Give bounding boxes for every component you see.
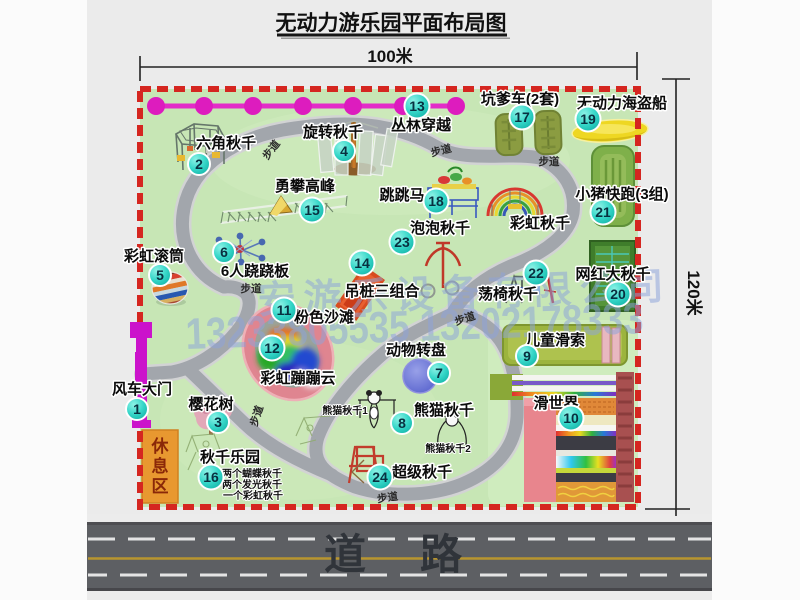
svg-text:6: 6	[220, 244, 228, 260]
svg-text:两个发光秋千: 两个发光秋千	[222, 478, 282, 491]
svg-text:路: 路	[420, 531, 463, 578]
svg-text:19: 19	[580, 111, 596, 127]
svg-text:14: 14	[354, 255, 370, 271]
svg-text:无动力游乐园平面布局图: 无动力游乐园平面布局图	[276, 11, 507, 35]
svg-text:熊猫秋千: 熊猫秋千	[414, 401, 474, 419]
svg-text:1: 1	[133, 401, 141, 417]
svg-text:超级秋千: 超级秋千	[391, 463, 452, 481]
svg-text:动物转盘: 动物转盘	[386, 341, 446, 359]
svg-text:10: 10	[563, 410, 579, 426]
svg-text:彩虹蹦蹦云: 彩虹蹦蹦云	[259, 369, 335, 387]
svg-text:24: 24	[372, 469, 388, 485]
svg-text:网红大秋千: 网红大秋千	[575, 265, 650, 283]
svg-text:22: 22	[528, 265, 544, 281]
svg-text:勇攀高峰: 勇攀高峰	[275, 177, 336, 195]
svg-text:樱花树: 樱花树	[188, 395, 233, 413]
svg-text:旋转秋千: 旋转秋千	[302, 123, 363, 141]
svg-text:六角秋千: 六角秋千	[196, 134, 256, 152]
svg-text:吊桩三组合: 吊桩三组合	[344, 282, 420, 300]
svg-text:一个彩虹秋千: 一个彩虹秋千	[223, 489, 283, 502]
svg-text:跳跳马: 跳跳马	[379, 186, 424, 204]
svg-text:8: 8	[398, 415, 406, 431]
svg-text:16: 16	[203, 469, 219, 485]
svg-text:熊猫秋千2: 熊猫秋千2	[425, 442, 471, 455]
svg-text:息: 息	[152, 456, 169, 476]
svg-text:风车大门: 风车大门	[112, 380, 172, 398]
svg-text:120米: 120米	[684, 270, 704, 316]
svg-text:熊猫秋千1: 熊猫秋千1	[322, 404, 368, 417]
svg-text:5: 5	[156, 267, 164, 283]
svg-text:23: 23	[394, 234, 410, 250]
svg-text:步道: 步道	[241, 282, 262, 295]
svg-text:13: 13	[409, 98, 425, 114]
svg-text:步道: 步道	[539, 155, 560, 168]
svg-text:秋千乐园: 秋千乐园	[200, 448, 260, 466]
svg-text:7: 7	[435, 365, 443, 381]
svg-text:20: 20	[610, 286, 626, 302]
svg-text:泡泡秋千: 泡泡秋千	[410, 219, 470, 237]
svg-text:2: 2	[195, 156, 203, 172]
svg-text:6人跷跷板: 6人跷跷板	[221, 262, 290, 280]
svg-text:道: 道	[324, 531, 366, 578]
svg-text:小猪快跑(3组): 小猪快跑(3组)	[575, 185, 668, 203]
svg-text:区: 区	[152, 477, 169, 496]
svg-text:9: 9	[523, 348, 531, 364]
svg-text:休: 休	[151, 436, 170, 456]
svg-text:21: 21	[595, 204, 611, 220]
svg-text:11: 11	[277, 302, 292, 318]
svg-text:4: 4	[340, 143, 348, 159]
svg-text:3: 3	[214, 414, 222, 430]
svg-text:两个蝴蝶秋千: 两个蝴蝶秋千	[222, 467, 282, 480]
svg-text:17: 17	[514, 109, 530, 125]
svg-text:18: 18	[428, 193, 444, 209]
svg-text:15: 15	[304, 202, 320, 218]
svg-text:粉色沙滩: 粉色沙滩	[294, 308, 354, 326]
svg-text:12: 12	[264, 340, 280, 356]
svg-text:彩虹秋千: 彩虹秋千	[509, 214, 570, 232]
svg-text:彩虹滚筒: 彩虹滚筒	[123, 247, 184, 265]
svg-text:荡椅秋千: 荡椅秋千	[478, 285, 538, 303]
svg-text:100米: 100米	[367, 46, 413, 66]
